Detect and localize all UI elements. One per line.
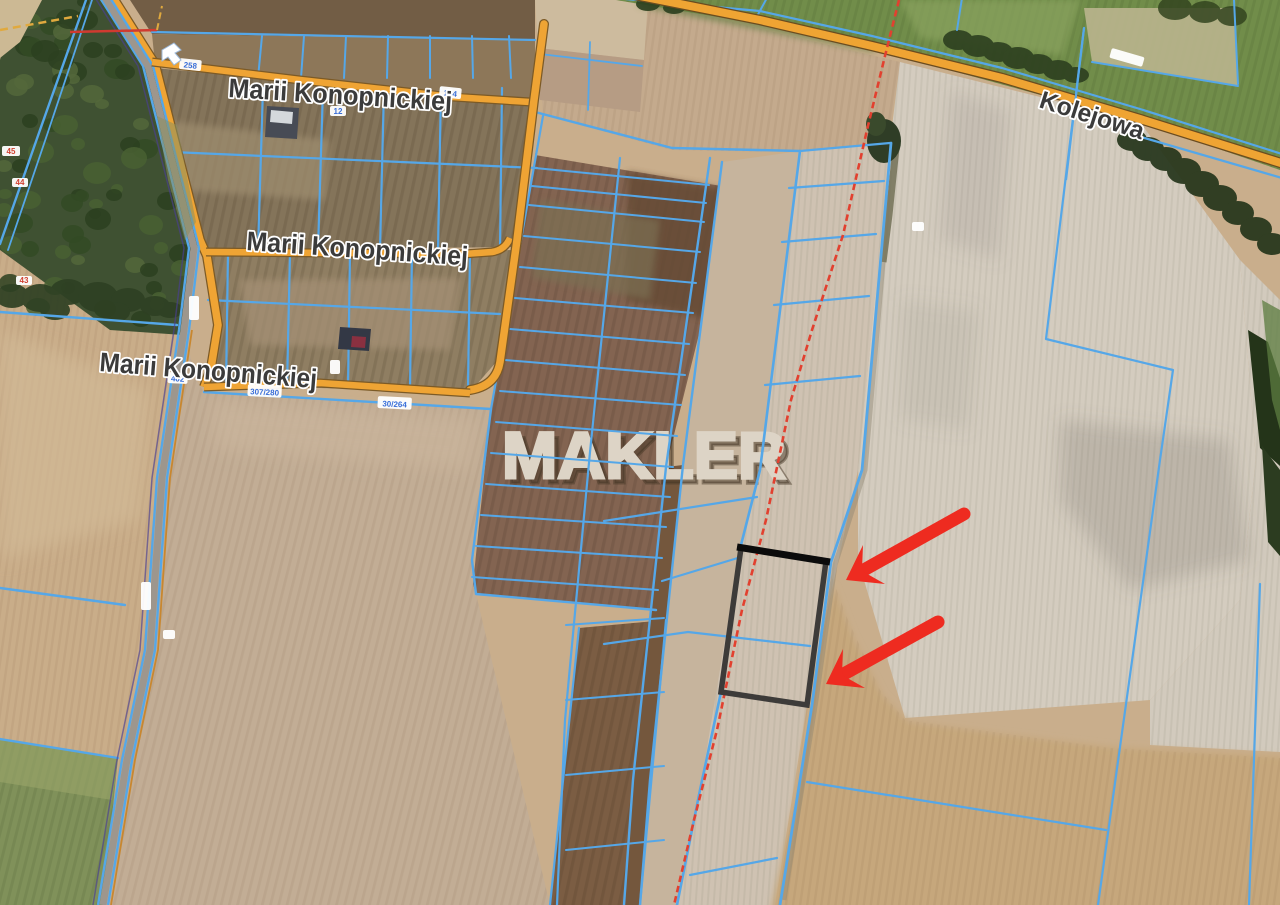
svg-text:44: 44	[16, 178, 25, 187]
svg-text:30/264: 30/264	[382, 399, 407, 409]
svg-text:43: 43	[20, 276, 29, 285]
svg-text:45: 45	[7, 147, 16, 156]
svg-text:MAKLER: MAKLER	[502, 418, 786, 492]
svg-text:258: 258	[183, 60, 198, 70]
